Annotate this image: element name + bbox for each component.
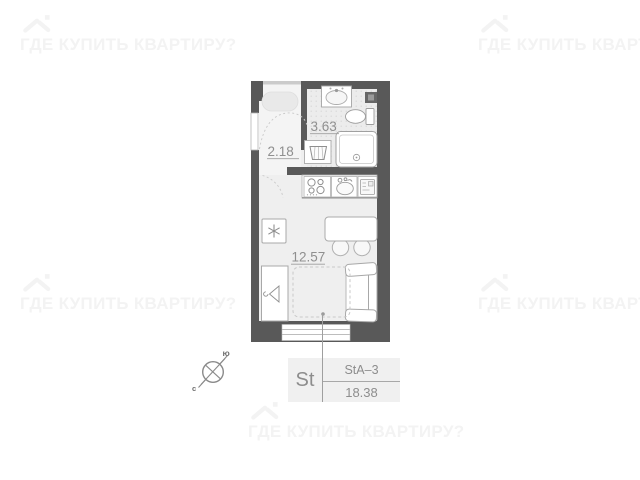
leader-line bbox=[322, 314, 323, 402]
watermark-text: ГДЕ КУПИТЬ КВАРТИРУ? bbox=[478, 294, 640, 314]
wall-room-divider bbox=[287, 167, 377, 175]
wall-left-lower bbox=[251, 150, 259, 322]
hall-top-window-line bbox=[263, 81, 301, 85]
window bbox=[282, 325, 350, 341]
bathtub bbox=[262, 92, 298, 111]
compass-north-label: с bbox=[192, 384, 196, 393]
house-icon bbox=[251, 400, 279, 420]
floorplan-canvas: ГДЕ КУПИТЬ КВАРТИРУ? ГДЕ КУПИТЬ КВАРТИРУ… bbox=[0, 0, 640, 480]
watermark-text: ГДЕ КУПИТЬ КВАРТИРУ? bbox=[20, 294, 236, 314]
watermark-text: ГДЕ КУПИТЬ КВАРТИРУ? bbox=[478, 35, 640, 55]
spec-box: St StA–3 18.38 bbox=[288, 358, 400, 402]
wall-right bbox=[377, 81, 390, 342]
house-icon bbox=[23, 272, 51, 292]
house-icon bbox=[23, 13, 51, 33]
chair-icon bbox=[332, 239, 348, 255]
fridge-icon bbox=[262, 219, 286, 243]
living-area-label: 12.57 bbox=[292, 250, 326, 265]
kitchen-sink-icon bbox=[332, 177, 358, 198]
wall-pier-top-left bbox=[251, 81, 263, 101]
chair-icon bbox=[354, 239, 370, 255]
hall-doorway-floor bbox=[259, 167, 287, 175]
bathroom-area-label: 3.63 bbox=[311, 119, 337, 134]
wardrobe bbox=[262, 266, 289, 321]
hall-area-label: 2.18 bbox=[268, 144, 294, 159]
watermark-text: ГДЕ КУПИТЬ КВАРТИРУ? bbox=[20, 35, 236, 55]
total-area: 18.38 bbox=[323, 382, 400, 402]
hob-icon bbox=[304, 177, 331, 198]
toilet-icon bbox=[346, 109, 375, 125]
compass: ю с bbox=[190, 344, 236, 396]
wall-left-upper bbox=[251, 101, 259, 113]
vent-shaft-icon bbox=[365, 92, 377, 103]
laundry-basket-icon bbox=[305, 141, 332, 164]
entry-door-leaf bbox=[251, 113, 258, 150]
house-icon bbox=[481, 272, 509, 292]
dining-table bbox=[325, 217, 377, 241]
wall-hall-bath-divider bbox=[301, 81, 307, 150]
wash-basin-icon bbox=[322, 86, 352, 107]
shower-cabin-icon bbox=[336, 132, 377, 168]
watermark-mid-right: ГДЕ КУПИТЬ КВАРТИРУ? bbox=[478, 272, 640, 314]
watermark-mid-left: ГДЕ КУПИТЬ КВАРТИРУ? bbox=[20, 272, 236, 314]
watermark-top-left: ГДЕ КУПИТЬ КВАРТИРУ? bbox=[20, 13, 236, 55]
watermark-top-right: ГДЕ КУПИТЬ КВАРТИРУ? bbox=[478, 13, 640, 55]
house-icon bbox=[481, 13, 509, 33]
watermark-text: ГДЕ КУПИТЬ КВАРТИРУ? bbox=[248, 422, 464, 442]
layout-code: StA–3 bbox=[323, 358, 400, 381]
apartment-type: St bbox=[288, 358, 322, 402]
watermark-bottom-center: ГДЕ КУПИТЬ КВАРТИРУ? bbox=[248, 400, 464, 442]
compass-south-label: ю bbox=[223, 348, 230, 358]
floor-plan: 2.18 3.63 12.57 bbox=[248, 78, 396, 348]
oven-unit-icon bbox=[358, 177, 377, 198]
